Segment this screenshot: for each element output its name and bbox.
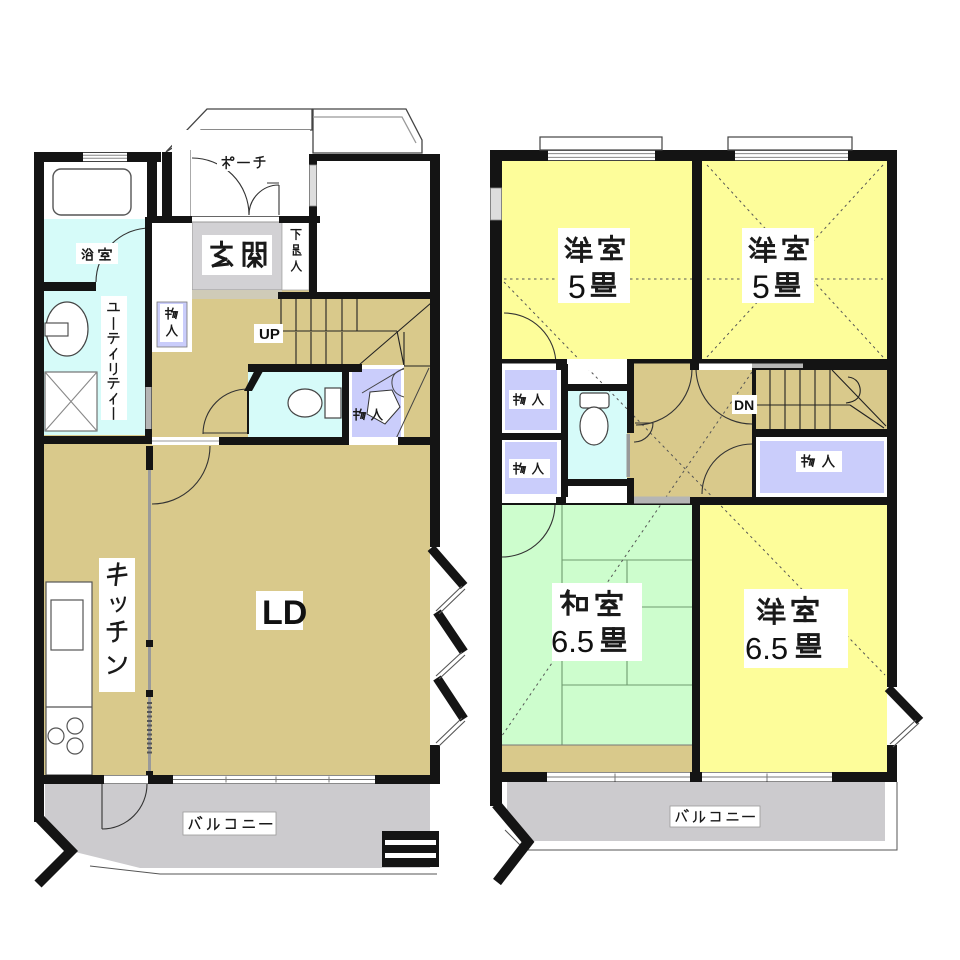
svg-text:6.5: 6.5 <box>551 624 594 659</box>
svg-text:5: 5 <box>752 269 770 305</box>
svg-text:5: 5 <box>568 269 586 305</box>
svg-text:DN: DN <box>734 397 754 413</box>
svg-text:LD: LD <box>262 594 307 632</box>
svg-text:6.5: 6.5 <box>745 631 788 666</box>
svg-text:UP: UP <box>259 326 280 343</box>
